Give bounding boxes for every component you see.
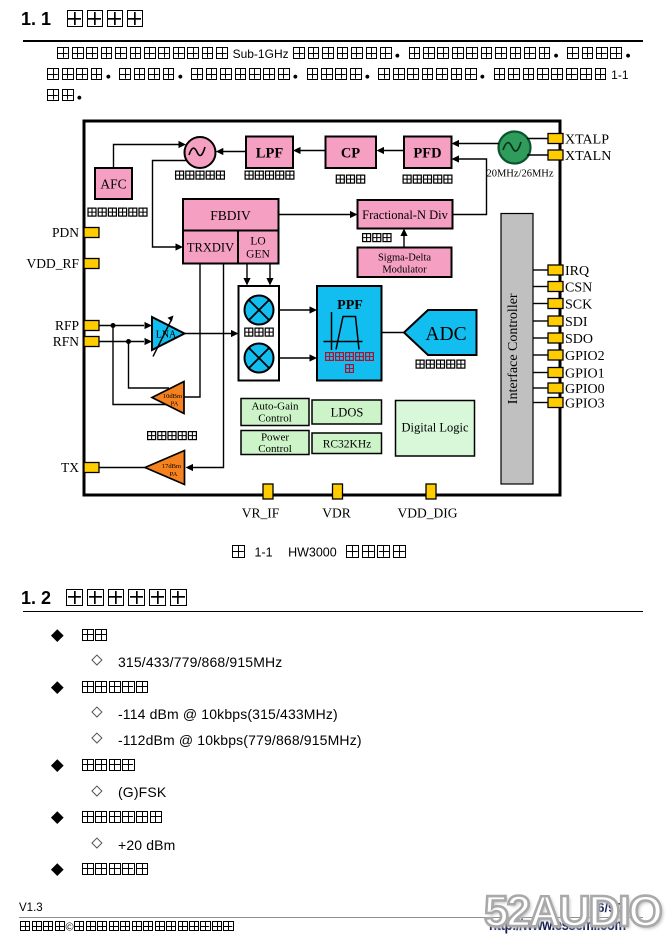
svg-text:LDOS: LDOS (331, 406, 364, 420)
svg-text:Interface Controller: Interface Controller (506, 293, 521, 404)
svg-text:20MHz/26MHz: 20MHz/26MHz (486, 169, 553, 180)
svg-text:PDN: PDN (52, 225, 79, 240)
svg-text:AFC: AFC (100, 177, 126, 192)
svg-text:PA: PA (170, 471, 178, 478)
svg-text:VDD_RF: VDD_RF (26, 256, 79, 271)
svg-text:SCK: SCK (565, 297, 592, 312)
svg-text:GPIO0: GPIO0 (565, 382, 605, 397)
svg-text:ADC: ADC (425, 324, 466, 345)
svg-text:RFN: RFN (53, 334, 80, 349)
svg-text:Control: Control (258, 443, 292, 455)
svg-text:GPIO3: GPIO3 (565, 396, 605, 411)
svg-text:GPIO2: GPIO2 (565, 349, 605, 364)
svg-text:TX: TX (61, 460, 79, 475)
svg-text:10dBm: 10dBm (163, 393, 182, 400)
svg-text:Sigma-Delta: Sigma-Delta (378, 253, 431, 264)
svg-text:LO: LO (250, 236, 265, 248)
svg-text:Auto-Gain: Auto-Gain (251, 401, 299, 413)
svg-text:Modulator: Modulator (382, 265, 427, 276)
svg-text:VDR: VDR (322, 506, 351, 521)
svg-text:XTALP: XTALP (565, 132, 609, 147)
svg-text:Fractional-N Div: Fractional-N Div (362, 208, 448, 222)
svg-text:Digital Logic: Digital Logic (402, 421, 469, 435)
svg-text:TRXDIV: TRXDIV (187, 241, 234, 255)
svg-text:FBDIV: FBDIV (210, 208, 251, 223)
svg-text:CP: CP (341, 146, 360, 162)
svg-text:PFD: PFD (413, 146, 441, 162)
svg-text:SDO: SDO (565, 332, 593, 347)
svg-text:GPIO1: GPIO1 (565, 366, 605, 381)
svg-text:PPF: PPF (337, 298, 363, 313)
svg-text:IRQ: IRQ (565, 264, 589, 279)
svg-text:RC32KHz: RC32KHz (323, 439, 372, 451)
svg-text:Power: Power (261, 432, 289, 444)
svg-text:VDD_DIG: VDD_DIG (398, 506, 458, 521)
svg-text:XTALN: XTALN (565, 149, 611, 164)
svg-text:GEN: GEN (246, 249, 270, 261)
svg-text:PA: PA (171, 401, 179, 408)
svg-text:17dBm: 17dBm (162, 463, 181, 470)
svg-text:RFP: RFP (55, 318, 79, 333)
svg-text:LPF: LPF (256, 146, 284, 162)
svg-text:VR_IF: VR_IF (242, 506, 280, 521)
svg-text:SDI: SDI (565, 315, 588, 330)
svg-text:CSN: CSN (565, 280, 592, 295)
svg-text:Control: Control (258, 413, 292, 425)
